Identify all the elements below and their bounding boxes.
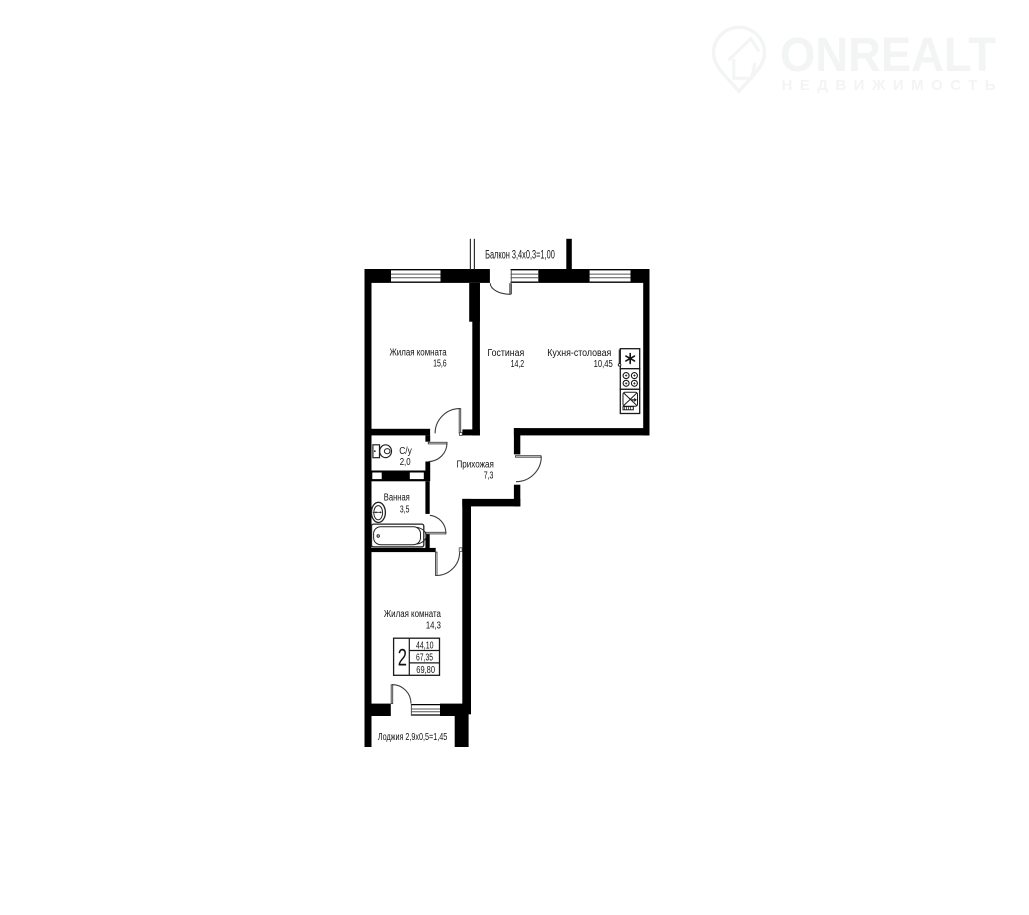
svg-text:ONREALT: ONREALT (780, 29, 996, 82)
svg-text:67,35: 67,35 (416, 653, 433, 664)
svg-text:2,0: 2,0 (400, 457, 411, 468)
svg-text:14,2: 14,2 (511, 359, 525, 370)
svg-text:Кухня-столовая: Кухня-столовая (547, 348, 611, 359)
svg-text:Прихожая: Прихожая (457, 459, 494, 470)
svg-text:Жилая комната: Жилая комната (390, 347, 448, 358)
svg-text:15,6: 15,6 (433, 358, 447, 369)
svg-text:3,5: 3,5 (400, 505, 410, 516)
svg-text:Жилая комната: Жилая комната (384, 609, 441, 620)
svg-text:14,3: 14,3 (426, 620, 441, 631)
svg-text:7,3: 7,3 (484, 470, 494, 481)
svg-text:10,45: 10,45 (594, 359, 613, 370)
svg-text:С/у: С/у (399, 446, 412, 457)
svg-text:Ванная: Ванная (384, 493, 410, 504)
svg-text:Лоджия 2,9х0,5=1,45: Лоджия 2,9х0,5=1,45 (378, 731, 448, 743)
svg-text:Гостиная: Гостиная (488, 348, 525, 359)
svg-text:44,10: 44,10 (416, 641, 434, 652)
svg-text:69,80: 69,80 (416, 665, 435, 676)
svg-text:2: 2 (398, 645, 407, 672)
svg-text:Балкон 3,4х0,3=1,00: Балкон 3,4х0,3=1,00 (485, 249, 555, 261)
